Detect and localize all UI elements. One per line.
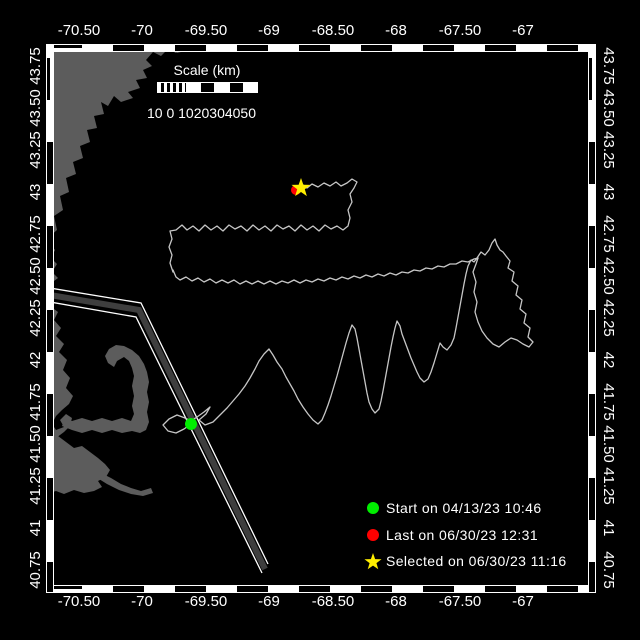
axis-left-tick: 40.75 [28,540,44,600]
start-position-marker [185,418,197,430]
scalebar-title: Scale (km) [155,62,259,78]
axis-top-tick: -69.50 [176,23,236,39]
axis-top-tick: -70.50 [49,23,109,39]
start-dot-icon [360,502,386,514]
axis-bottom-tick: -68 [366,594,426,610]
axis-top-tick: -67.50 [430,23,490,39]
axis-top-tick: -68.50 [303,23,363,39]
map-frame-bottom [46,585,596,593]
selected-star-icon-svg [363,551,383,571]
axis-right-tick: 40.75 [600,540,616,600]
axis-top-tick: -68 [366,23,426,39]
star-icon [364,553,381,569]
track-line [169,179,357,272]
map-frame-right [588,44,596,593]
axis-bottom-tick: -69.50 [176,594,236,610]
land-polygon [99,473,153,496]
legend-item-last: Last on 06/30/23 12:31 [360,522,538,548]
axis-bottom-tick: -69 [239,594,299,610]
land-polygon [54,434,110,494]
scalebar-segment [229,83,244,92]
land-polygon [54,244,58,284]
map-frame-top [46,44,596,52]
scalebar-segment [244,83,257,92]
land-polygon [54,52,200,236]
axis-bottom-tick: -68.50 [303,594,363,610]
shipping-lane-stripe [54,295,265,569]
axis-bottom-tick: -70.50 [49,594,109,610]
scalebar-segment [187,83,200,92]
scalebar-segment [215,83,228,92]
scalebar-segment [200,83,215,92]
land-polygon [62,345,149,433]
axis-top-tick: -67 [493,23,553,39]
last-dot-icon [360,529,386,541]
legend-last-label: Last on 06/30/23 12:31 [386,527,538,543]
track-line [173,258,478,284]
axis-bottom-tick: -67 [493,594,553,610]
legend-item-selected: Selected on 06/30/23 11:16 [360,548,567,574]
scalebar-subdivision [158,83,187,92]
axis-bottom-tick: -67.50 [430,594,490,610]
track-line [163,239,533,433]
axis-top-tick: -70 [112,23,172,39]
land-polygon [54,306,73,440]
selected-star-icon [360,551,386,571]
track-map-screenshot: -70.50-70-69.50-69-68.50-68-67.50-67 -70… [0,0,640,640]
axis-bottom-tick: -70 [112,594,172,610]
scalebar-numbers: 10 0 1020304050 [147,105,256,121]
legend-selected-label: Selected on 06/30/23 11:16 [386,553,567,569]
axis-top-tick: -69 [239,23,299,39]
legend-start-label: Start on 04/13/23 10:46 [386,500,542,516]
legend-item-start: Start on 04/13/23 10:46 [360,495,542,521]
map-frame-left [46,44,54,593]
scalebar [157,82,258,93]
